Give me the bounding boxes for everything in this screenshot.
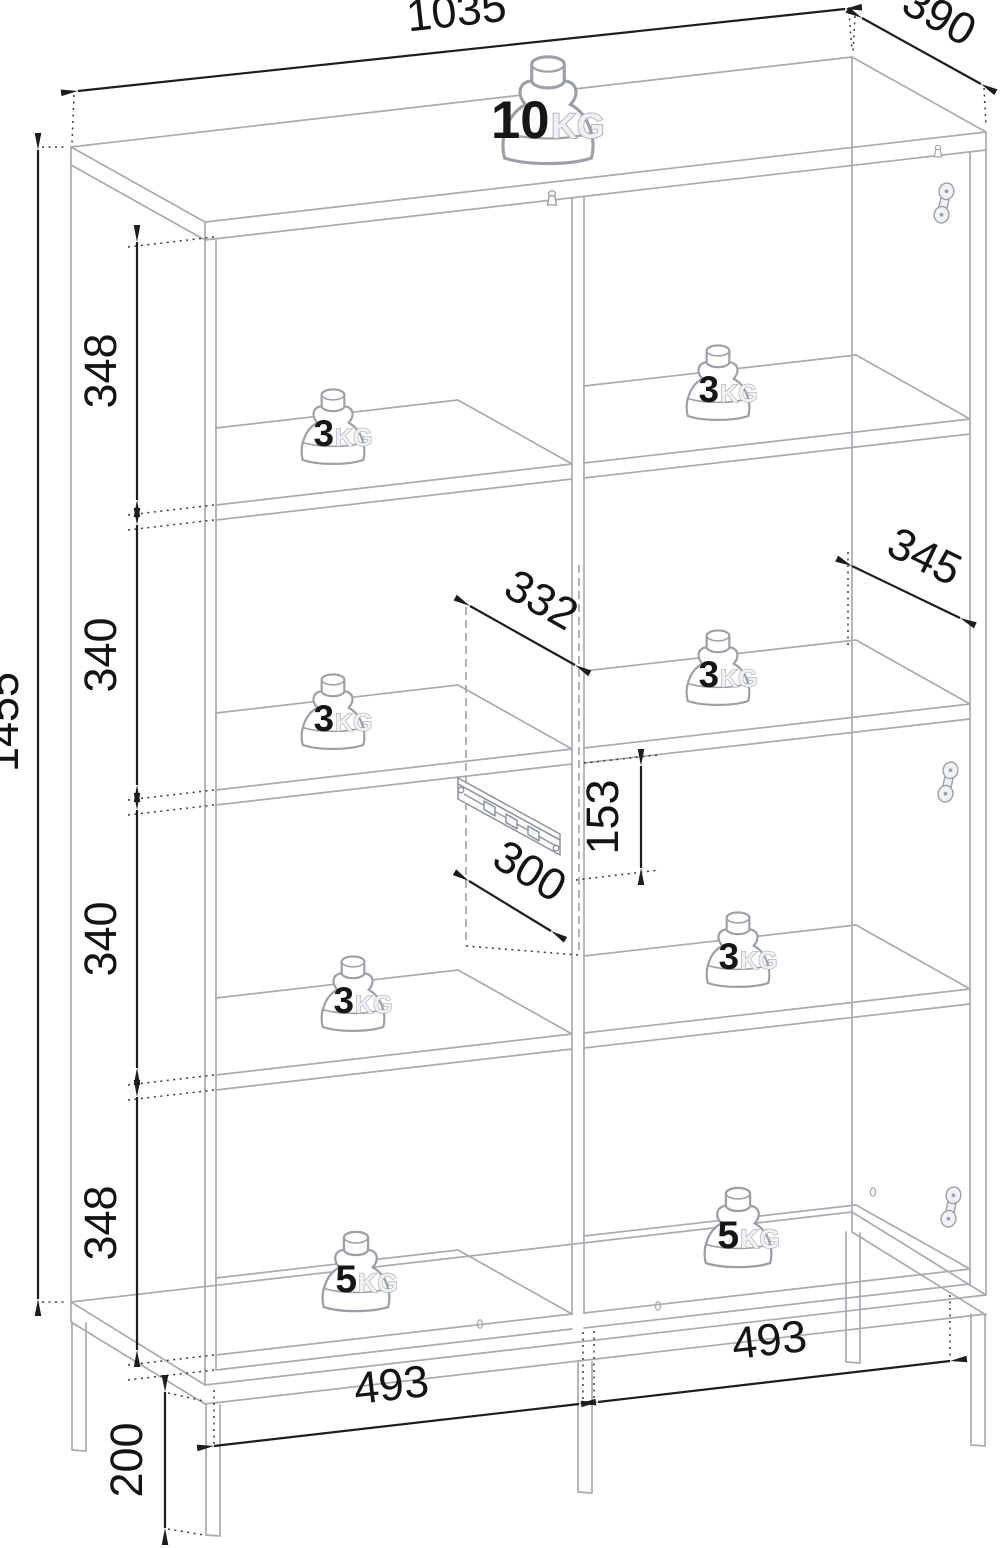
dim-shelf-depth-right: 345 (848, 517, 970, 648)
svg-text:5: 5 (717, 1214, 739, 1257)
dim-section-2: 340 (75, 525, 214, 815)
dim-section-3: 340 (75, 810, 214, 1100)
svg-text:KG: KG (335, 710, 372, 737)
svg-text:3: 3 (699, 369, 719, 410)
svg-text:493: 493 (729, 1310, 809, 1369)
svg-text:3: 3 (314, 413, 334, 454)
weight-icon-top: 10 KG (491, 57, 605, 164)
dim-drawer-height: 153 (576, 755, 660, 880)
svg-text:3: 3 (719, 936, 739, 977)
svg-text:KG: KG (358, 1268, 398, 1298)
dim-shelf-depth-left: 332 (470, 559, 587, 665)
svg-text:3: 3 (314, 698, 334, 739)
weight-icon-shelf: 3 KG (302, 674, 373, 748)
svg-text:KG: KG (740, 948, 777, 975)
dim-overall-height-label: 1455 (0, 672, 28, 772)
weight-icon-bottom: 5 KG (705, 1188, 780, 1267)
dim-section-1: 348 (75, 237, 214, 530)
hinge-icon (937, 761, 960, 804)
dim-inner-width-right: 493 (594, 1295, 950, 1407)
dim-top-depth-label: 390 (894, 0, 984, 56)
cabinet-carcass (71, 57, 986, 1385)
svg-text:153: 153 (577, 779, 628, 854)
base-frame (71, 1212, 986, 1404)
svg-text:KG: KG (720, 666, 757, 693)
cam-lock-icon (547, 191, 556, 205)
svg-text:200: 200 (101, 1422, 152, 1497)
dim-overall-height: 1455 (0, 147, 66, 1302)
weight-top-unit: KG (551, 106, 604, 146)
dim-top-width-label: 1035 (404, 0, 509, 41)
weight-icon-bottom: 5 KG (323, 1232, 398, 1311)
svg-text:348: 348 (75, 333, 126, 408)
weight-icon-shelf: 3 KG (707, 912, 778, 986)
svg-text:345: 345 (880, 517, 970, 596)
dim-leg-height: 200 (101, 1392, 204, 1535)
svg-text:5: 5 (335, 1258, 357, 1301)
weight-icon-shelf: 3 KG (322, 956, 393, 1030)
svg-text:348: 348 (75, 1185, 126, 1260)
hinge-icon (933, 182, 956, 225)
svg-text:493: 493 (351, 1355, 431, 1414)
cam-lock-icon (934, 145, 941, 157)
weight-icon-shelf: 3 KG (302, 389, 373, 463)
furniture-dimension-diagram: 10 KG 3 KG 3 KG 3 KG 3 KG 3 KG 3 KG 5 KG… (0, 0, 1000, 1548)
weight-icon-shelf: 3 KG (687, 630, 758, 704)
svg-text:340: 340 (75, 617, 126, 692)
svg-text:3: 3 (334, 980, 354, 1021)
svg-text:KG: KG (335, 425, 372, 452)
weight-top-value: 10 (491, 91, 550, 150)
svg-text:3: 3 (699, 654, 719, 695)
svg-text:KG: KG (720, 381, 757, 408)
svg-text:KG: KG (355, 992, 392, 1019)
svg-text:KG: KG (740, 1224, 780, 1254)
hinge-icon (940, 1186, 963, 1229)
svg-text:340: 340 (75, 901, 126, 976)
weight-icon-shelf: 3 KG (687, 345, 758, 419)
